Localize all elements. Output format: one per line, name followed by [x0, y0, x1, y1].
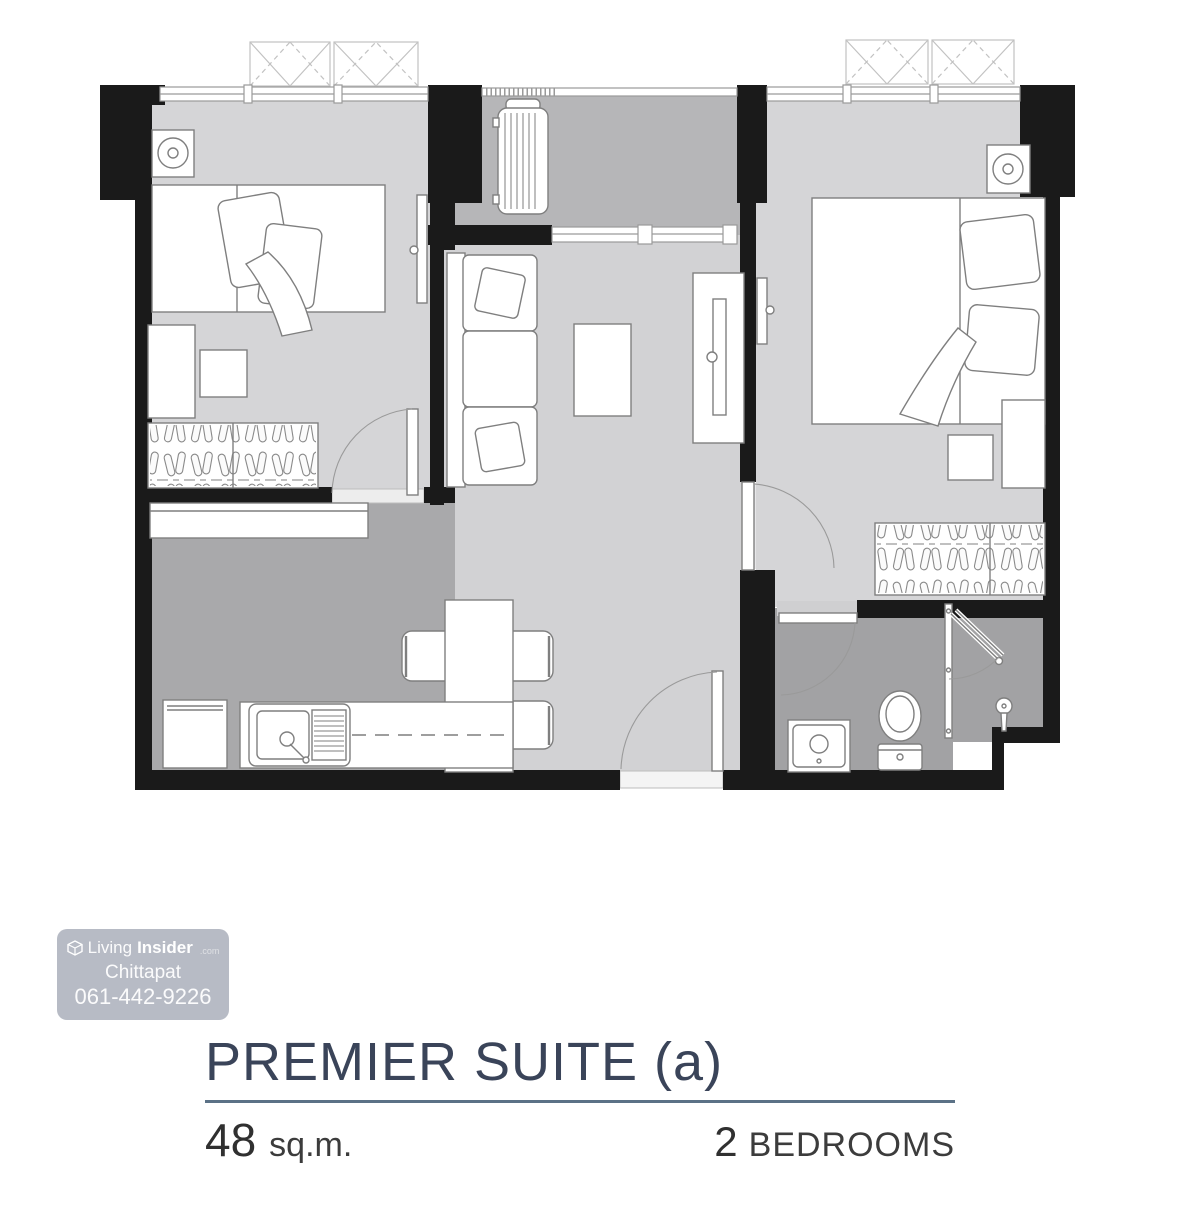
ac-ledge-icon	[250, 42, 330, 86]
agent-name: Chittapat	[105, 961, 181, 984]
watermark: LivingInsider.com Chittapat 061-442-9226	[57, 929, 229, 1020]
tv-console	[693, 273, 744, 443]
wardrobe	[875, 523, 1045, 595]
kitchen-sink-icon	[249, 704, 350, 766]
title-underline	[205, 1100, 955, 1103]
brand-suffix: Insider	[137, 938, 193, 959]
ceiling-ac-icon	[987, 145, 1030, 193]
ac-ledge-icon	[846, 40, 928, 84]
master-bedroom-window	[767, 85, 1020, 103]
unit-stats: 48 sq.m. 2 BEDROOMS	[205, 1113, 955, 1167]
bedroom-count: 2	[714, 1118, 737, 1166]
shower-glass-partition	[945, 604, 952, 738]
brand-prefix: Living	[88, 938, 132, 959]
balcony-furniture	[493, 99, 548, 214]
bathroom-niche	[953, 742, 992, 772]
ceiling-ac-icon	[152, 130, 194, 177]
balcony-sliding-door	[552, 225, 737, 244]
wardrobe	[148, 423, 318, 488]
bedroom-label: BEDROOMS	[749, 1126, 955, 1165]
desk	[148, 325, 195, 418]
ac-condenser-icon	[493, 99, 548, 214]
coffee-table	[574, 324, 631, 416]
sofa	[447, 253, 537, 487]
balcony-railing	[482, 88, 737, 96]
dresser	[1002, 400, 1045, 488]
floor-plan-drawing	[0, 0, 1200, 850]
watermark-brand: LivingInsider.com	[67, 938, 220, 959]
balcony-floor	[450, 95, 753, 235]
area-value: 48	[205, 1113, 256, 1167]
floor-plan-page: LivingInsider.com Chittapat 061-442-9226…	[0, 0, 1200, 1221]
title-block: PREMIER SUITE (a) 48 sq.m. 2 BEDROOMS	[205, 1031, 955, 1167]
ac-ledge-boxes	[250, 40, 1014, 86]
ac-ledge-icon	[932, 40, 1014, 84]
nightstand	[200, 350, 247, 397]
counter-cabinet	[150, 503, 368, 538]
area-stat: 48 sq.m.	[205, 1113, 352, 1167]
bed	[812, 198, 1045, 426]
bedrooms-stat: 2 BEDROOMS	[714, 1118, 955, 1166]
agent-phone: 061-442-9226	[74, 984, 211, 1011]
unit-title: PREMIER SUITE (a)	[205, 1031, 955, 1093]
area-unit: sq.m.	[269, 1126, 352, 1165]
bedroom-2-window	[160, 85, 428, 103]
refrigerator	[163, 700, 227, 768]
living-insider-logo-icon	[67, 940, 83, 956]
nightstand	[948, 435, 993, 480]
vanity-sink-icon	[788, 720, 850, 772]
brand-domain: .com	[200, 946, 220, 959]
ac-ledge-icon	[334, 42, 418, 86]
toilet-icon	[878, 691, 922, 770]
